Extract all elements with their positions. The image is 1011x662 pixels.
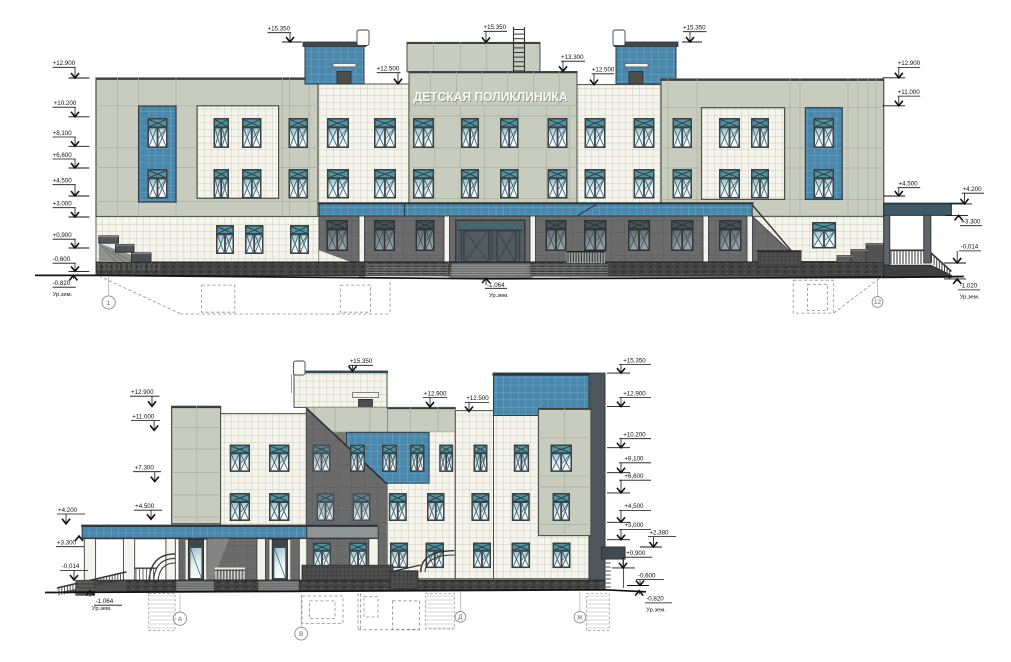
svg-text:+2,380: +2,380 [649, 529, 669, 536]
svg-text:+3,000: +3,000 [53, 201, 73, 208]
svg-text:-0,820: -0,820 [53, 280, 71, 287]
svg-text:+15.350: +15.350 [623, 357, 646, 364]
svg-text:+12.500: +12.500 [592, 67, 615, 74]
svg-text:В: В [299, 631, 303, 638]
svg-text:-0,014: -0,014 [961, 244, 979, 251]
svg-text:-0,014: -0,014 [62, 563, 80, 570]
svg-text:+10.200: +10.200 [623, 432, 646, 439]
svg-text:Ур.зем.: Ур.зем. [489, 293, 509, 299]
svg-text:+3,000: +3,000 [624, 522, 644, 529]
svg-text:Ур.зем.: Ур.зем. [646, 608, 666, 614]
svg-text:1: 1 [107, 300, 111, 307]
svg-text:+12.500: +12.500 [377, 66, 400, 73]
svg-text:+0,900: +0,900 [53, 232, 73, 239]
svg-text:+12.900: +12.900 [898, 60, 921, 67]
svg-text:+3.300: +3.300 [57, 540, 77, 547]
svg-text:+4,500: +4,500 [53, 178, 73, 185]
svg-text:-0,600: -0,600 [638, 572, 656, 579]
svg-text:+13.300: +13.300 [561, 54, 584, 61]
svg-text:Ур.зем.: Ур.зем. [960, 295, 980, 301]
svg-text:+11.000: +11.000 [898, 89, 921, 96]
svg-text:+11.000: +11.000 [132, 413, 155, 420]
svg-text:+12.900: +12.900 [623, 390, 646, 397]
svg-text:+4.200: +4.200 [58, 507, 78, 514]
svg-text:+6,600: +6,600 [53, 152, 73, 159]
svg-text:+15.350: +15.350 [268, 26, 291, 33]
svg-text:+4.500: +4.500 [899, 181, 919, 188]
svg-text:Ж: Ж [577, 615, 583, 622]
svg-text:12: 12 [874, 299, 881, 306]
svg-text:+8,100: +8,100 [624, 456, 644, 463]
svg-text:+12.900: +12.900 [424, 390, 447, 397]
svg-text:+12.500: +12.500 [466, 395, 489, 402]
svg-text:+4.500: +4.500 [135, 503, 155, 510]
svg-text:+8,100: +8,100 [53, 130, 73, 137]
svg-text:А: А [178, 616, 183, 623]
svg-text:Ур.зем.: Ур.зем. [92, 606, 112, 612]
svg-text:+0,900: +0,900 [626, 550, 646, 557]
svg-text:+12.900: +12.900 [53, 60, 76, 67]
svg-text:-0,600: -0,600 [53, 256, 71, 263]
svg-text:+15.350: +15.350 [683, 25, 706, 32]
svg-text:+10.200: +10.200 [54, 100, 77, 107]
svg-text:-1.064: -1.064 [96, 598, 114, 605]
svg-text:ДЕТСКАЯ ПОЛИКЛИНИКА: ДЕТСКАЯ ПОЛИКЛИНИКА [414, 89, 568, 104]
svg-text:+6,600: +6,600 [624, 473, 644, 480]
svg-text:+4.200: +4.200 [963, 186, 983, 193]
svg-text:+15.350: +15.350 [350, 358, 373, 365]
svg-text:+3.300: +3.300 [961, 219, 981, 226]
svg-text:+12.900: +12.900 [131, 389, 154, 396]
svg-text:+7.300: +7.300 [135, 465, 155, 472]
svg-text:Ур.зем.: Ур.зем. [53, 292, 73, 298]
svg-text:-1,020: -1,020 [960, 283, 978, 290]
svg-text:-0,820: -0,820 [646, 596, 664, 603]
svg-text:+4,500: +4,500 [624, 503, 644, 510]
svg-text:+15.350: +15.350 [484, 24, 507, 31]
